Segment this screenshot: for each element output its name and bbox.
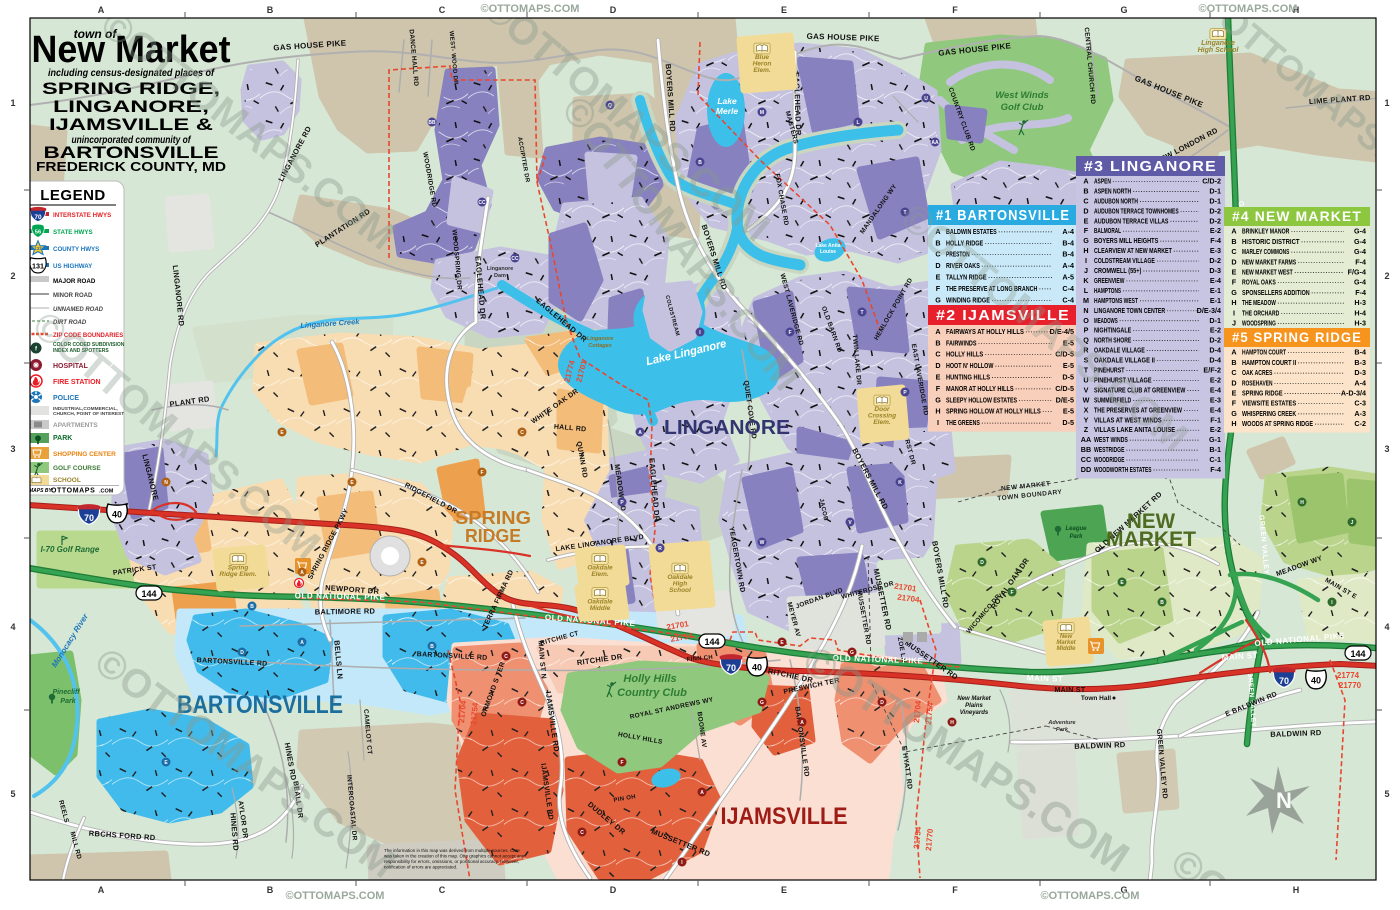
svg-text:D-4: D-4 xyxy=(1209,356,1221,365)
svg-text:E: E xyxy=(1084,216,1089,225)
svg-text:H: H xyxy=(935,407,940,416)
svg-text:New Market: New Market xyxy=(957,696,991,702)
svg-text:B: B xyxy=(430,644,434,650)
svg-text:C-3: C-3 xyxy=(1354,399,1366,408)
svg-text:#4 NEW MARKET: #4 NEW MARKET xyxy=(1232,208,1362,224)
svg-text:C-2: C-2 xyxy=(1354,419,1366,428)
svg-text:Vineyards: Vineyards xyxy=(960,710,989,716)
svg-text:Z: Z xyxy=(1084,425,1089,434)
svg-text:was taken in the creation of t: was taken in the creation of this map. O… xyxy=(384,854,525,859)
svg-text:N: N xyxy=(164,480,168,486)
svg-text:H: H xyxy=(1293,885,1300,895)
svg-text:LEGEND: LEGEND xyxy=(40,187,106,204)
svg-text:E: E xyxy=(936,273,941,282)
svg-text:D-1: D-1 xyxy=(1209,316,1221,325)
svg-text:D: D xyxy=(1231,378,1236,387)
svg-text:US HIGHWAY: US HIGHWAY xyxy=(53,263,93,270)
svg-text:E-3: E-3 xyxy=(1210,395,1221,404)
svg-text:I: I xyxy=(937,418,939,427)
svg-text:H-4: H-4 xyxy=(1354,308,1366,317)
svg-text:F-4: F-4 xyxy=(1210,236,1221,245)
svg-text:C-4: C-4 xyxy=(1062,284,1074,293)
svg-text:A-D-3/4: A-D-3/4 xyxy=(1341,389,1366,398)
svg-text:F: F xyxy=(1232,278,1237,287)
svg-text:WOODWORTH ESTATES: WOODWORTH ESTATES xyxy=(1094,465,1152,474)
svg-text:C/D-2: C/D-2 xyxy=(1202,176,1221,185)
svg-text:HAMPTON COURT II: HAMPTON COURT II xyxy=(1242,358,1296,367)
svg-text:I-70 Golf Range: I-70 Golf Range xyxy=(41,545,100,554)
svg-text:A-4: A-4 xyxy=(1062,227,1074,236)
svg-text:1: 1 xyxy=(1384,98,1389,108)
svg-text:G: G xyxy=(935,395,941,404)
svg-text:D-5: D-5 xyxy=(1062,418,1074,427)
svg-text:T: T xyxy=(860,310,863,316)
svg-text:A: A xyxy=(700,790,704,796)
svg-text:D: D xyxy=(240,650,244,656)
svg-text:B: B xyxy=(250,604,254,610)
svg-text:C-4: C-4 xyxy=(1062,295,1074,304)
svg-text:CC: CC xyxy=(1081,455,1091,464)
svg-text:W: W xyxy=(1083,395,1090,404)
svg-text:Cottages: Cottages xyxy=(588,343,612,349)
svg-text:D-2: D-2 xyxy=(1209,336,1221,345)
svg-text:N: N xyxy=(1083,306,1088,315)
svg-text:40: 40 xyxy=(1311,676,1321,686)
svg-text:F: F xyxy=(620,760,623,766)
svg-text:F-1: F-1 xyxy=(1210,415,1221,424)
svg-text:B: B xyxy=(1160,600,1164,606)
svg-text:AA: AA xyxy=(931,140,939,146)
svg-text:E-4: E-4 xyxy=(1210,405,1221,414)
svg-text:A-5: A-5 xyxy=(1062,273,1074,282)
svg-text:BALMORAL: BALMORAL xyxy=(1094,226,1121,235)
svg-text:#3 LINGANORE: #3 LINGANORE xyxy=(1084,159,1217,175)
svg-text:A: A xyxy=(1231,227,1236,236)
svg-text:A-4: A-4 xyxy=(1062,261,1074,270)
svg-text:D: D xyxy=(935,361,940,370)
svg-text:MARKET: MARKET xyxy=(1106,528,1196,551)
svg-text:B-4: B-4 xyxy=(1062,238,1074,247)
svg-text:A: A xyxy=(935,327,940,336)
svg-text:D/E-5: D/E-5 xyxy=(1056,395,1074,404)
svg-text:E: E xyxy=(781,885,787,895)
svg-text:School: School xyxy=(669,587,691,594)
svg-text:B: B xyxy=(1083,186,1088,195)
svg-text:D-1: D-1 xyxy=(1209,196,1221,205)
svg-text:Holly Hills: Holly Hills xyxy=(623,673,676,685)
svg-text:F: F xyxy=(952,885,958,895)
svg-text:THE ORCHARD: THE ORCHARD xyxy=(1242,308,1279,317)
svg-text:E-3: E-3 xyxy=(1210,246,1221,255)
svg-text:J: J xyxy=(1232,319,1236,328)
svg-text:THE GREENS: THE GREENS xyxy=(946,418,980,427)
svg-text:MAPS BY:: MAPS BY: xyxy=(29,488,54,494)
svg-text:F-4: F-4 xyxy=(1355,257,1366,266)
svg-text:©OTTOMAPS.COM: ©OTTOMAPS.COM xyxy=(1199,3,1298,15)
svg-text:G: G xyxy=(1231,409,1237,418)
svg-text:LINGANORE: LINGANORE xyxy=(664,417,790,439)
svg-text:E-2: E-2 xyxy=(1210,326,1221,335)
svg-text:BALDWIN RD: BALDWIN RD xyxy=(1270,728,1322,739)
svg-text:H: H xyxy=(1300,500,1304,506)
svg-text:C: C xyxy=(580,830,584,836)
svg-text:A: A xyxy=(1083,176,1088,185)
svg-text:M: M xyxy=(1083,296,1089,305)
svg-text:CHURCH, POINT OF INTEREST: CHURCH, POINT OF INTEREST xyxy=(53,411,124,417)
svg-text:F: F xyxy=(480,470,483,476)
svg-text:COUNTY HWYS: COUNTY HWYS xyxy=(53,246,99,253)
svg-text:HAMPTON COURT: HAMPTON COURT xyxy=(1242,348,1286,357)
svg-text:AUDUBON NORTH: AUDUBON NORTH xyxy=(1094,196,1138,205)
svg-text:Elem.: Elem. xyxy=(591,571,609,578)
svg-text:H: H xyxy=(1231,298,1236,307)
svg-text:C: C xyxy=(504,654,508,660)
svg-text:.COM: .COM xyxy=(99,489,114,495)
svg-text:©OTTOMAPS.COM: ©OTTOMAPS.COM xyxy=(286,890,385,902)
svg-text:D: D xyxy=(980,560,984,566)
svg-text:I: I xyxy=(1233,308,1235,317)
svg-text:21770: 21770 xyxy=(1339,681,1362,690)
svg-text:J: J xyxy=(1084,266,1088,275)
svg-text:Merle: Merle xyxy=(716,106,738,116)
svg-text:Dam: Dam xyxy=(494,273,506,279)
svg-text:L: L xyxy=(856,120,859,126)
svg-text:E-4: E-4 xyxy=(1210,276,1221,285)
svg-text:E-2: E-2 xyxy=(1210,375,1221,384)
svg-text:CROMWELL (55+): CROMWELL (55+) xyxy=(1094,266,1142,275)
svg-text:NORTH SHORE: NORTH SHORE xyxy=(1094,336,1131,345)
svg-text:SPRING RIDGE: SPRING RIDGE xyxy=(1242,389,1283,398)
svg-text:40: 40 xyxy=(752,663,762,673)
svg-text:NIGHTINGALE: NIGHTINGALE xyxy=(1094,326,1131,335)
svg-text:B: B xyxy=(935,338,940,347)
svg-text:BOYERS MILL HEIGHTS: BOYERS MILL HEIGHTS xyxy=(1094,236,1158,245)
svg-text:WEST WINDS: WEST WINDS xyxy=(1094,435,1128,444)
svg-text:WOODRIDGE: WOODRIDGE xyxy=(1094,455,1125,464)
svg-text:G: G xyxy=(1120,5,1127,15)
svg-text:131: 131 xyxy=(32,262,44,271)
svg-text:G-4: G-4 xyxy=(1354,237,1366,246)
svg-text:Adventure: Adventure xyxy=(1047,720,1075,726)
svg-text:H-3: H-3 xyxy=(1354,319,1366,328)
svg-text:Elem.: Elem. xyxy=(753,67,771,74)
svg-text:West Winds: West Winds xyxy=(995,90,1049,101)
svg-text:OTTOMAPS: OTTOMAPS xyxy=(51,488,95,495)
svg-text:40: 40 xyxy=(112,510,122,520)
svg-text:MINOR ROAD: MINOR ROAD xyxy=(53,293,93,299)
svg-text:ASPEN: ASPEN xyxy=(1094,176,1111,185)
svg-text:D: D xyxy=(610,5,617,15)
svg-text:FAIRWINDS: FAIRWINDS xyxy=(946,338,977,347)
svg-text:3: 3 xyxy=(10,444,15,454)
svg-text:G: G xyxy=(760,700,764,706)
svg-text:COLDSTREAM VILLAGE: COLDSTREAM VILLAGE xyxy=(1094,256,1155,265)
svg-text:D-2: D-2 xyxy=(1209,216,1221,225)
svg-text:G: G xyxy=(1083,236,1089,245)
svg-text:F: F xyxy=(936,384,941,393)
svg-text:F: F xyxy=(1232,399,1237,408)
svg-text:LINGANORE TOWN CENTER: LINGANORE TOWN CENTER xyxy=(1094,306,1166,315)
svg-text:O: O xyxy=(1083,316,1089,325)
svg-text:B: B xyxy=(267,885,274,895)
svg-text:K: K xyxy=(1083,276,1089,285)
svg-text:C-1: C-1 xyxy=(1209,455,1221,464)
svg-text:A: A xyxy=(1231,348,1236,357)
svg-text:HAMPTONS: HAMPTONS xyxy=(1094,286,1121,295)
svg-text:ROSEHAVEN: ROSEHAVEN xyxy=(1242,378,1272,387)
svg-text:AUDUBON TERRACE TOWNHOMES: AUDUBON TERRACE TOWNHOMES xyxy=(1094,206,1179,215)
svg-text:MANOR AT HOLLY HILLS: MANOR AT HOLLY HILLS xyxy=(946,384,1014,393)
svg-text:E-1: E-1 xyxy=(1210,286,1221,295)
svg-text:BB: BB xyxy=(1081,445,1091,454)
svg-text:D-3: D-3 xyxy=(1354,368,1366,377)
svg-text:5: 5 xyxy=(10,789,15,799)
svg-text:MAIN ST: MAIN ST xyxy=(1055,687,1086,694)
svg-text:C: C xyxy=(439,885,446,895)
svg-text:D: D xyxy=(610,885,617,895)
svg-text:Plains: Plains xyxy=(965,703,983,709)
svg-text:B-4: B-4 xyxy=(1062,250,1074,259)
svg-text:BALTIMORE RD: BALTIMORE RD xyxy=(315,606,376,616)
svg-text:C: C xyxy=(1083,196,1088,205)
svg-text:E-4: E-4 xyxy=(1210,385,1221,394)
svg-text:F: F xyxy=(952,5,958,15)
svg-text:WOODS AT SPRING RIDGE: WOODS AT SPRING RIDGE xyxy=(1242,419,1313,428)
svg-text:U: U xyxy=(924,96,928,102)
svg-text:4: 4 xyxy=(1384,622,1389,632)
svg-text:A: A xyxy=(638,430,642,436)
svg-text:WESTRIDGE: WESTRIDGE xyxy=(1094,445,1125,454)
svg-text:IJAMSVILLE &: IJAMSVILLE & xyxy=(49,115,213,134)
svg-text:AUDUBON TERRACE VILLAS: AUDUBON TERRACE VILLAS xyxy=(1094,216,1169,225)
svg-text:responsibility for errors, omi: responsibility for errors, omissions, or… xyxy=(384,859,519,864)
svg-text:Y: Y xyxy=(1084,415,1089,424)
svg-text:CC: CC xyxy=(511,256,519,262)
svg-text:#5 SPRING RIDGE: #5 SPRING RIDGE xyxy=(1232,329,1362,345)
svg-text:HOOT N' HOLLOW: HOOT N' HOLLOW xyxy=(946,361,994,370)
svg-text:CLEARVIEW AT NEW MARKET: CLEARVIEW AT NEW MARKET xyxy=(1094,246,1172,255)
svg-text:G: G xyxy=(1231,288,1237,297)
svg-text:ASPEN NORTH: ASPEN NORTH xyxy=(1094,186,1131,195)
svg-text:D-4: D-4 xyxy=(1209,346,1221,355)
svg-text:THE MEADOW: THE MEADOW xyxy=(1242,298,1276,307)
svg-text:3: 3 xyxy=(1384,444,1389,454)
svg-text:F: F xyxy=(936,284,941,293)
svg-text:M: M xyxy=(760,110,764,116)
svg-text:DD: DD xyxy=(1081,465,1091,474)
svg-text:G: G xyxy=(935,295,941,304)
svg-text:HOLLY HILLS: HOLLY HILLS xyxy=(946,350,983,359)
svg-text:NEW MARKET WEST: NEW MARKET WEST xyxy=(1242,268,1293,277)
svg-text:Park: Park xyxy=(1069,534,1083,540)
svg-text:X: X xyxy=(1084,405,1089,414)
svg-text:A: A xyxy=(800,720,804,726)
svg-text:D-2: D-2 xyxy=(1209,256,1221,265)
svg-text:Park: Park xyxy=(1056,727,1069,733)
svg-text:GREENVIEW: GREENVIEW xyxy=(1094,276,1125,285)
svg-text:E-1: E-1 xyxy=(1210,296,1221,305)
svg-text:B-1: B-1 xyxy=(1209,445,1221,454)
svg-text:G-4: G-4 xyxy=(1354,247,1366,256)
svg-text:F: F xyxy=(788,330,791,336)
svg-text:RIDGE: RIDGE xyxy=(465,526,521,546)
svg-text:BB: BB xyxy=(428,120,436,126)
svg-text:G-4: G-4 xyxy=(1354,278,1366,287)
svg-text:A: A xyxy=(98,885,105,895)
svg-text:56: 56 xyxy=(35,230,41,236)
svg-text:HUNTING HILLS: HUNTING HILLS xyxy=(946,373,990,382)
svg-text:©OTTOMAPS.COM: ©OTTOMAPS.COM xyxy=(1041,890,1140,902)
svg-text:R: R xyxy=(658,546,662,552)
svg-text:Middle: Middle xyxy=(1057,646,1077,652)
svg-text:J: J xyxy=(1351,520,1354,526)
svg-text:B-4: B-4 xyxy=(1354,348,1366,357)
svg-text:WHISPERING CREEK: WHISPERING CREEK xyxy=(1242,409,1297,418)
svg-text:E: E xyxy=(1232,389,1237,398)
svg-text:Pinecliff: Pinecliff xyxy=(52,689,80,696)
svg-text:E/F-2: E/F-2 xyxy=(1203,366,1221,375)
svg-text:B: B xyxy=(267,5,274,15)
svg-text:B: B xyxy=(1231,358,1236,367)
svg-text:4: 4 xyxy=(10,622,15,632)
svg-text:SPRING: SPRING xyxy=(455,508,531,528)
svg-text:IJAMSVILLE: IJAMSVILLE xyxy=(721,803,848,830)
svg-text:SCHOOL: SCHOOL xyxy=(53,477,81,484)
svg-text:H: H xyxy=(1083,246,1088,255)
svg-text:W: W xyxy=(760,540,765,546)
svg-text:1: 1 xyxy=(10,98,15,108)
svg-text:MAJOR ROAD: MAJOR ROAD xyxy=(53,278,96,285)
svg-text:STATE HWYS: STATE HWYS xyxy=(53,229,93,236)
svg-text:NEW MARKET FARMS: NEW MARKET FARMS xyxy=(1242,257,1296,266)
svg-text:OLD NATIONAL PIKE: OLD NATIONAL PIKE xyxy=(295,591,386,602)
svg-text:AA: AA xyxy=(1081,435,1091,444)
svg-text:70: 70 xyxy=(726,663,736,673)
svg-text:D-1: D-1 xyxy=(1209,186,1221,195)
svg-text:SPONSELLERS ADDITION: SPONSELLERS ADDITION xyxy=(1242,288,1310,297)
svg-text:POLICE: POLICE xyxy=(53,395,79,402)
svg-text:E: E xyxy=(1232,268,1237,277)
svg-text:5: 5 xyxy=(1384,789,1389,799)
svg-text:2: 2 xyxy=(1384,271,1389,281)
svg-text:B: B xyxy=(1231,237,1236,246)
svg-text:F: F xyxy=(1084,226,1089,235)
svg-text:Country Club: Country Club xyxy=(617,687,687,699)
svg-text:SHOPPING CENTER: SHOPPING CENTER xyxy=(53,451,116,458)
svg-text:E: E xyxy=(936,373,941,382)
svg-text:Golf Club: Golf Club xyxy=(1001,102,1044,113)
svg-text:G-4: G-4 xyxy=(1354,227,1366,236)
svg-text:A: A xyxy=(300,570,304,576)
svg-text:132: 132 xyxy=(34,246,42,251)
svg-text:Louise: Louise xyxy=(820,249,836,255)
svg-text:Park: Park xyxy=(60,698,76,705)
svg-text:SLEEPY HOLLOW ESTATES: SLEEPY HOLLOW ESTATES xyxy=(946,395,1017,404)
svg-text:ROYAL OAKS: ROYAL OAKS xyxy=(1242,278,1276,287)
svg-text:High School: High School xyxy=(1198,47,1240,54)
svg-text:C: C xyxy=(439,5,446,15)
svg-text:D/E-3/4: D/E-3/4 xyxy=(1197,306,1221,315)
svg-text:N: N xyxy=(1276,788,1292,813)
svg-text:F/G-4: F/G-4 xyxy=(1348,268,1366,277)
svg-text:Linganore: Linganore xyxy=(487,266,514,272)
svg-text:A-4: A-4 xyxy=(1354,378,1366,387)
svg-text:CC: CC xyxy=(478,200,486,206)
svg-text:70: 70 xyxy=(34,214,42,221)
svg-text:FREDERICK COUNTY, MD: FREDERICK COUNTY, MD xyxy=(36,160,226,174)
svg-text:C: C xyxy=(520,430,524,436)
svg-text:C: C xyxy=(520,700,524,706)
svg-text:D: D xyxy=(1231,257,1236,266)
svg-text:E-5: E-5 xyxy=(1063,407,1074,416)
svg-text:21774: 21774 xyxy=(1337,671,1360,680)
svg-text:#1 BARTONSVILLE: #1 BARTONSVILLE xyxy=(936,208,1070,224)
svg-text:©OTTOMAPS.COM: ©OTTOMAPS.COM xyxy=(481,3,580,15)
svg-text:D-2: D-2 xyxy=(1209,206,1221,215)
svg-text:notification of errors are app: notification of errors are appreciated. xyxy=(384,865,457,870)
svg-text:A: A xyxy=(98,5,105,15)
svg-text:L: L xyxy=(1084,286,1089,295)
svg-text:D-3: D-3 xyxy=(1209,266,1221,275)
svg-text:Linganore: Linganore xyxy=(587,336,614,342)
svg-text:The information in this map wa: The information in this map was derived … xyxy=(384,848,520,853)
svg-text:MARLEY COMMONS: MARLEY COMMONS xyxy=(1242,247,1290,256)
svg-text:70: 70 xyxy=(84,513,94,523)
svg-text:APARTMENTS: APARTMENTS xyxy=(53,422,98,429)
svg-text:144: 144 xyxy=(141,589,156,599)
svg-text:SPRING HOLLOW AT HOLLY HILLS: SPRING HOLLOW AT HOLLY HILLS xyxy=(946,407,1041,416)
svg-text:INTERSTATE HWYS: INTERSTATE HWYS xyxy=(53,212,111,219)
svg-text:Elem.: Elem. xyxy=(873,419,891,426)
svg-text:144: 144 xyxy=(704,637,719,647)
svg-text:BRINKLEY MANOR: BRINKLEY MANOR xyxy=(1242,227,1290,236)
svg-text:Lake: Lake xyxy=(717,96,737,106)
svg-text:E-2: E-2 xyxy=(1210,226,1221,235)
svg-text:E: E xyxy=(781,5,787,15)
svg-text:HISTORIC DISTRICT: HISTORIC DISTRICT xyxy=(1242,237,1300,246)
svg-text:E-2: E-2 xyxy=(1210,425,1221,434)
svg-text:Town Hall: Town Hall xyxy=(1081,695,1111,702)
svg-text:B-3: B-3 xyxy=(1354,358,1366,367)
svg-text:League: League xyxy=(1065,526,1087,532)
svg-text:OAK ACRES: OAK ACRES xyxy=(1242,368,1273,377)
svg-text:F-4: F-4 xyxy=(1210,465,1221,474)
svg-text:C/D-5: C/D-5 xyxy=(1055,384,1074,393)
svg-text:C: C xyxy=(1231,247,1236,256)
svg-text:144: 144 xyxy=(1350,649,1365,659)
svg-text:Middle: Middle xyxy=(590,605,611,612)
svg-text:BALDWIN RD: BALDWIN RD xyxy=(1074,740,1126,751)
svg-text:K: K xyxy=(898,480,902,486)
svg-text:F-4: F-4 xyxy=(1355,288,1366,297)
svg-text:A-3: A-3 xyxy=(1354,409,1366,418)
svg-text:D: D xyxy=(1083,206,1088,215)
svg-text:F: F xyxy=(1010,590,1013,596)
svg-text:C: C xyxy=(1231,368,1236,377)
svg-text:GOLF COURSE: GOLF COURSE xyxy=(53,465,101,472)
svg-text:WOODSPRING: WOODSPRING xyxy=(1242,319,1276,328)
svg-text:A: A xyxy=(300,640,304,646)
svg-text:H-3: H-3 xyxy=(1354,298,1366,307)
svg-text:H: H xyxy=(1231,419,1236,428)
svg-text:PARK: PARK xyxy=(53,435,72,442)
svg-text:Ridge Elem.: Ridge Elem. xyxy=(219,571,256,578)
svg-text:C: C xyxy=(935,350,940,359)
svg-text:70: 70 xyxy=(1279,676,1289,686)
svg-text:I: I xyxy=(1085,256,1087,265)
svg-text:MAIN ST: MAIN ST xyxy=(1027,673,1064,683)
svg-text:HAMPTONS WEST: HAMPTONS WEST xyxy=(1094,296,1138,305)
